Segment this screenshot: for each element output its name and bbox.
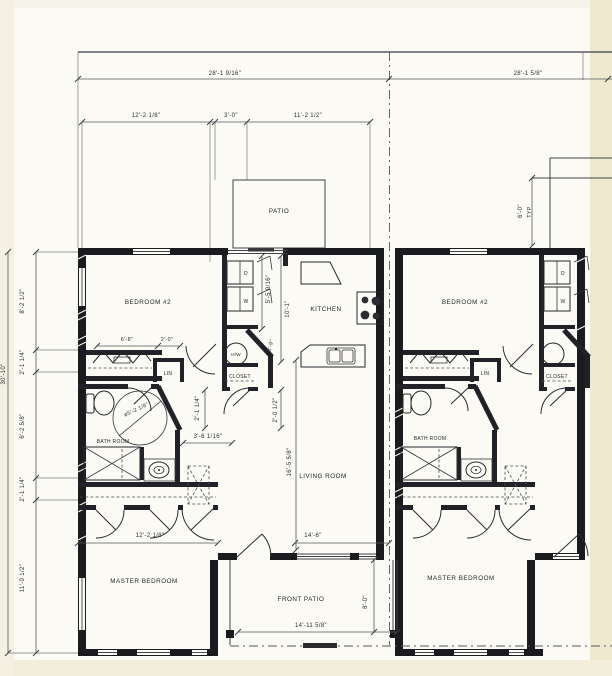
dim-kitchen-depth: 10'-1": [285, 300, 291, 317]
sliding-door-panel: [248, 249, 274, 252]
room-label-master-left: MASTER BEDROOM: [110, 578, 178, 585]
dim-living-width: 14'-6": [304, 533, 321, 539]
dim-typ: TYP: [527, 206, 533, 218]
room-label-bath-left: BATH ROOM: [97, 439, 130, 445]
dim-utility: 5'-5 9/16": [266, 275, 272, 304]
room-label-bedroom2-left: BEDROOM #2: [125, 299, 171, 306]
room-label-front-patio: FRONT PATIO: [278, 596, 325, 603]
dim-bedroom-width: 12'-2 1/8": [132, 113, 161, 119]
room-label-patio: PATIO: [269, 208, 289, 215]
room-label-master-right: MASTER BEDROOM: [427, 575, 495, 582]
label-lin-left: LIN: [164, 371, 173, 377]
dim-side-5: 11'-9 1/2": [20, 564, 26, 592]
dim-front-patio-width: 14'-11 5/8": [295, 623, 327, 629]
dim-patio-door: 3'-0": [224, 113, 238, 119]
room-label-bedroom2-right: BEDROOM #2: [442, 299, 488, 306]
dim-kitchen-bay: 11'-2 1/2": [294, 113, 322, 119]
dim-closet-2: 2'-0": [161, 337, 173, 343]
dim-overall-left: 28'-1 9/16": [209, 71, 241, 77]
room-label-living: LIVING ROOM: [299, 473, 346, 480]
dim-closet-depth: 2'-0 1/2": [273, 397, 279, 422]
dim-rear-patio-depth: 6'-0": [518, 204, 524, 218]
label-water-heater: H/W: [231, 352, 241, 357]
label-dryer-left: D: [244, 271, 248, 277]
dim-side-4: 2'-1 1/4": [20, 476, 26, 501]
room-label-bath-right: BATH ROOM: [414, 436, 447, 442]
floor-plan-page: 28'-1 9/16" 28'-1 5/8" 12'-2 1/8" 3'-0" …: [0, 0, 612, 676]
dim-side-total: 30'-10": [1, 363, 7, 384]
label-closet-right: CLOSET: [546, 374, 568, 380]
paper-background: [0, 0, 612, 676]
dim-side-1: 8'-2 1/2": [20, 288, 26, 313]
label-lin-right: LIN: [481, 371, 490, 377]
dim-master-width: 12'-2 1/8": [136, 533, 165, 539]
dim-living-depth: 16'-5 5/8": [287, 448, 293, 477]
walkway-mark: [303, 643, 337, 648]
dim-closet-1: 6'-8": [121, 337, 133, 343]
dim-side-3: 6'-2 5/8": [20, 413, 26, 438]
label-closet-left: CLOSET: [229, 374, 251, 380]
dim-overall-right: 28'-1 5/8": [514, 71, 543, 77]
dim-hall: 2'-1 1/4": [195, 395, 201, 420]
dim-front-patio-depth: 8'-0": [363, 595, 369, 609]
room-label-kitchen: KITCHEN: [310, 306, 341, 313]
label-dryer-right: D: [561, 271, 565, 277]
dim-side-2: 2'-1 1/4": [20, 349, 26, 374]
label-washer-right: W: [560, 299, 565, 305]
dim-bath-width: 3'-6 1/16": [194, 434, 223, 440]
label-washer-left: W: [243, 299, 248, 305]
duplex-floor-plan: 28'-1 9/16" 28'-1 5/8" 12'-2 1/8" 3'-0" …: [0, 0, 612, 676]
